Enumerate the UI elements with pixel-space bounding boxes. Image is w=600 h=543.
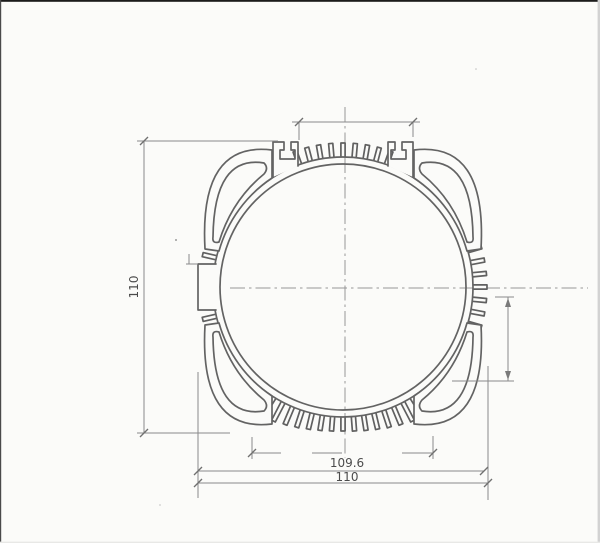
corner-pocket-nw xyxy=(205,149,272,251)
ring-outer-wall xyxy=(213,157,473,417)
fin xyxy=(372,413,380,430)
fin xyxy=(401,401,414,422)
fin xyxy=(316,145,323,160)
fin xyxy=(329,143,334,157)
dim-bottom-outer-label: 110 xyxy=(336,470,359,484)
scan-edge-left xyxy=(0,0,1,543)
fin xyxy=(473,285,487,289)
scan-edge-top xyxy=(0,0,600,2)
fin xyxy=(472,271,486,277)
fin xyxy=(318,415,325,431)
scan-speck xyxy=(159,504,161,506)
corner-pocket-ne xyxy=(414,149,481,251)
fin xyxy=(283,406,294,425)
fin xyxy=(341,417,345,431)
corner-pocket-se xyxy=(414,323,481,425)
fin xyxy=(362,415,369,431)
dim-left-height-label: 110 xyxy=(127,276,141,299)
t-slot-boss-right xyxy=(388,142,413,177)
mounting-pad-left xyxy=(186,254,216,310)
fin xyxy=(351,416,356,431)
profile-ring xyxy=(213,157,473,417)
fin xyxy=(392,406,403,425)
fin xyxy=(470,258,485,265)
fin xyxy=(306,413,314,430)
fin xyxy=(382,410,392,428)
scanned-drawing-page: 110 xyxy=(0,0,600,543)
dim-bottom-outer: 110 xyxy=(194,470,492,487)
fin xyxy=(202,314,217,321)
corner-pocket-sw xyxy=(205,323,272,425)
scan-speck xyxy=(475,68,477,70)
ring-inner-wall xyxy=(220,164,466,410)
fin xyxy=(329,416,334,431)
fin xyxy=(472,297,486,303)
fin xyxy=(341,143,345,157)
fin xyxy=(363,145,370,160)
dim-bottom-inner-label: 109.6 xyxy=(330,456,364,470)
fin xyxy=(470,309,485,316)
fin xyxy=(352,143,357,157)
fin xyxy=(272,401,285,422)
fin xyxy=(202,253,217,260)
dim-top-span xyxy=(292,118,420,140)
fin xyxy=(374,147,382,162)
t-slot-boss-left xyxy=(273,142,298,177)
fin xyxy=(295,410,305,428)
scan-speck xyxy=(175,239,177,241)
fin xyxy=(305,147,313,162)
drawing-canvas: 110 xyxy=(0,0,600,543)
